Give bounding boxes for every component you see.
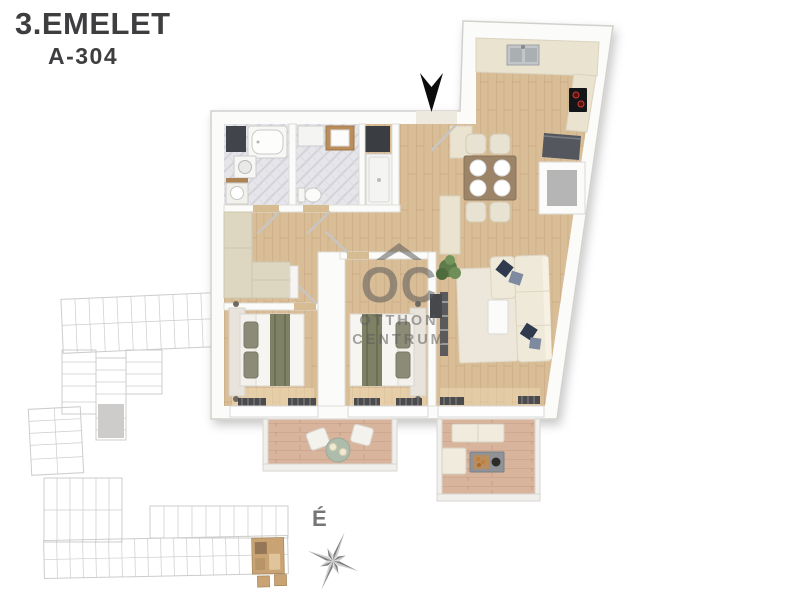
site-plan-upper-row [150, 506, 288, 538]
balcony-2-railing [437, 494, 540, 501]
dining-set [464, 134, 516, 222]
site-plan-left-column [62, 350, 96, 414]
window [230, 406, 544, 417]
wall-niche [539, 162, 585, 214]
dining-chair [490, 202, 510, 222]
page-title: 3.EMELET A-304 [15, 6, 171, 70]
bed-runner [270, 314, 290, 386]
balcony-1-railing [263, 464, 397, 471]
site-plan-bottom-wing [44, 535, 289, 591]
bedroom-1 [229, 301, 314, 406]
outdoor-bench [452, 424, 504, 442]
site-plan-highlighted-unit [252, 537, 287, 587]
dining-chair [466, 134, 486, 154]
dining-chair [466, 202, 486, 222]
outdoor-coffee-table [470, 452, 504, 472]
bathroom-1-vanity [226, 178, 248, 204]
site-plan-right-column [126, 350, 162, 394]
watermark-word-1: OTTHON [316, 313, 482, 329]
cooktop [569, 88, 587, 112]
bed-1 [229, 308, 304, 396]
bathroom-1 [224, 124, 289, 205]
balcony-2 [437, 419, 540, 501]
site-plan-shaded-unit [98, 404, 124, 438]
floor-label: 3.EMELET [15, 6, 171, 42]
bathtub [248, 126, 287, 158]
watermark-word-2: CENTRUM [316, 332, 482, 348]
bed-pillow [244, 352, 258, 378]
entrance-arrow-icon [420, 73, 443, 112]
shaft-1 [226, 126, 246, 152]
compass-rose-icon [296, 522, 369, 600]
washing-machine [234, 156, 256, 178]
compass-north-label: É [312, 506, 327, 532]
toilet [298, 188, 321, 202]
site-plan-top-wing [61, 293, 217, 354]
shaft-2 [365, 126, 390, 152]
unit-label: A-304 [48, 43, 171, 70]
kitchen-sink [507, 45, 539, 65]
bathroom-2-vanity [326, 126, 354, 150]
bathroom-2 [296, 124, 359, 205]
coffee-table [488, 300, 508, 334]
bed-pillow [396, 352, 410, 378]
bathroom-2-cabinet [298, 126, 324, 146]
site-plan-block-e [44, 478, 122, 542]
shower-room [365, 126, 392, 205]
floorplan-page: 3.EMELET A-304 OC OTTHON CENTRUM É [0, 0, 800, 600]
balcony-1 [263, 419, 397, 471]
watermark-initials: OC [316, 260, 482, 310]
watermark-logo: OC OTTHON CENTRUM [316, 243, 482, 348]
site-plan-mid-wing [96, 358, 126, 440]
dining-chair [490, 134, 510, 154]
site-plan-lower-left-block [28, 407, 83, 476]
outdoor-armchair [442, 448, 466, 474]
bed-pillow [244, 322, 258, 348]
sofa-pillow [529, 337, 541, 349]
bedside-lamp [233, 301, 239, 307]
